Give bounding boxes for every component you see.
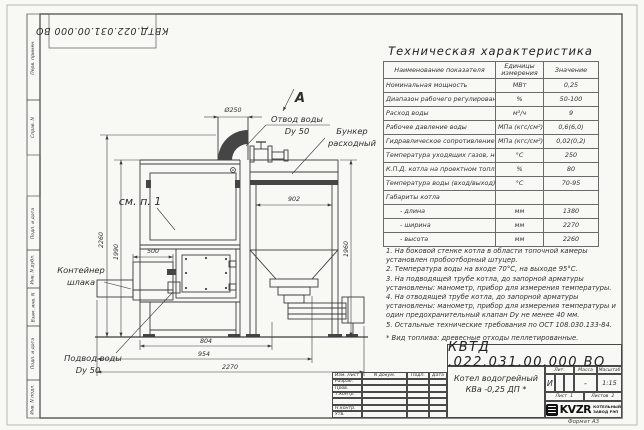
note-1: 1. На боковой стенке котла в области топ… — [386, 247, 618, 264]
tb-mass-label: Масса — [574, 366, 597, 374]
kvzr-logo-icon — [546, 404, 558, 416]
titleblock-signature-table: Изм. Лист N докум. Подп. Дата Разраб. Пр… — [332, 372, 447, 418]
spec-row: - длинамм1380 — [384, 205, 599, 219]
spec-row: - высотамм2260 — [384, 233, 599, 247]
lower-door — [176, 249, 236, 298]
kvzr-logo-text: KVZR — [560, 403, 591, 416]
format-note: Формат А3 — [545, 419, 622, 425]
note-3: 3. На подводящей трубе котла, до запорно… — [386, 275, 618, 292]
dim-hopper-width: 902 — [288, 196, 300, 203]
callout-hopper: Бункер — [336, 126, 367, 136]
notes-block: 1. На боковой стенке котла в области топ… — [386, 247, 618, 344]
titleblock-doc-number: КВТД .022.031.00.000 ВО — [447, 344, 622, 366]
note-4: 4. На отводящей трубе котла, до запорной… — [386, 293, 618, 319]
dim-hopper-height: 1960 — [343, 241, 350, 257]
dim-height-total: 2260 — [98, 232, 105, 248]
strip-label-inv-dubl: Инв. N дубл. — [27, 250, 40, 288]
door-handle — [167, 269, 176, 275]
tb-scale-label: Масштаб — [597, 366, 622, 374]
callout-water-outlet: Отвод воды — [271, 114, 323, 124]
titleblock-product-name: Котел водогрейный КВа -0,25 ДП * — [447, 366, 545, 418]
tb-lit-value: И — [545, 374, 555, 392]
see-note-label: см. п. 1 — [119, 195, 162, 208]
titleblock-sheet-row: Лист1 Листов2 — [545, 392, 622, 401]
strip-label-perv-primen: Перв. примен. — [27, 14, 40, 100]
note-2: 2. Температура воды на входе 70°С, на вы… — [386, 265, 618, 274]
spec-row: К.П.Д. котла на проектном топливе%80 — [384, 163, 599, 177]
spec-row: - ширинамм2270 — [384, 219, 599, 233]
kvzr-logo-subtitle: КОТЕЛЬНЫЙ ЗАВОД РЭП — [593, 405, 621, 414]
tb-lit-label: Лит. — [545, 366, 574, 374]
callout-water-inlet-dy: Dy 50 — [76, 365, 101, 375]
slag-container-front — [133, 262, 173, 300]
drawing-sheet: КВТД.022.031.00.000 ВО — [0, 0, 644, 430]
spec-row: Гидравлическое сопротивление котлаМПа (к… — [384, 135, 599, 149]
callout-slag-container-2: шлака — [67, 277, 95, 287]
spec-col-value: Значение — [544, 62, 599, 79]
strip-label-vzam-inv: Взам. инв. N — [27, 288, 40, 326]
kvzr-logo: KVZR КОТЕЛЬНЫЙ ЗАВОД РЭП — [545, 401, 622, 418]
spec-row: Рабочее давление водыМПа (кгс/см²)0,6(6,… — [384, 121, 599, 135]
dim-width-mid: 954 — [198, 351, 210, 358]
spec-row: Температура воды (вход/выход)°С70-95 — [384, 177, 599, 191]
spec-section: Техническая характеристика Наименование … — [383, 44, 598, 247]
strip-label-podp-data-1: Подп. и дата — [27, 196, 40, 250]
callout-water-outlet-dy: Dy 50 — [285, 126, 310, 136]
upper-door — [150, 173, 236, 240]
dim-width-total: 2270 — [222, 364, 238, 371]
tb-sheets-cell: Листов2 — [584, 392, 623, 401]
chimney-elbow — [218, 130, 248, 160]
callout-hopper-2: расходный — [327, 138, 377, 148]
spec-col-name: Наименование показателя — [384, 62, 496, 79]
tb-mass-value: - — [574, 374, 597, 392]
dim-height-body: 1990 — [113, 244, 120, 260]
water-inlet-fitting — [168, 282, 180, 293]
spec-header-row: Наименование показателя Единицыизмерения… — [384, 62, 599, 79]
screw-feeder — [288, 303, 346, 319]
top-stamp-doc-number: КВТД.022.031.00.000 ВО — [35, 25, 168, 36]
spec-col-units: Единицыизмерения — [496, 62, 544, 79]
titleblock-lit-values: И - 1:15 — [545, 374, 622, 392]
strip-label-sprav-n: Справ. N — [27, 100, 40, 155]
spec-row: Расход водым³/ч9 — [384, 107, 599, 121]
dimension-lines — [97, 89, 364, 376]
tb-row-utv: Утв. — [332, 411, 362, 418]
spec-title: Техническая характеристика — [383, 44, 598, 58]
dim-chimney-dia: Ø250 — [224, 106, 242, 114]
section-view-label: А — [294, 91, 305, 106]
dim-container-width: 500 — [147, 248, 159, 255]
note-5: 5. Остальные технические требования по О… — [386, 321, 618, 330]
callout-slag-container: Контейнер — [57, 265, 105, 275]
tb-sheet-cell: Лист1 — [545, 392, 584, 401]
strip-label-inv-podl: Инв. N подл. — [27, 380, 40, 418]
dim-width-boiler: 804 — [200, 338, 212, 345]
spec-row: Номинальная мощностьМВт0,25 — [384, 79, 599, 93]
tb-scale-value: 1:15 — [597, 374, 622, 392]
spec-row: Габариты котла — [384, 191, 599, 205]
spec-table: Наименование показателя Единицыизмерения… — [383, 61, 599, 247]
spec-row: Температура уходящих газов, не более°С25… — [384, 149, 599, 163]
titleblock-lit-header: Лит. Масса Масштаб — [545, 366, 622, 374]
strip-label-podp-data-2: Подп. и дата — [27, 326, 40, 380]
slag-container-side — [97, 280, 133, 297]
spec-row: Диапазон рабочего регулирования%50-100 — [384, 93, 599, 107]
callout-water-inlet: Подвод воды — [64, 353, 122, 363]
boiler-filled-details — [143, 130, 358, 337]
